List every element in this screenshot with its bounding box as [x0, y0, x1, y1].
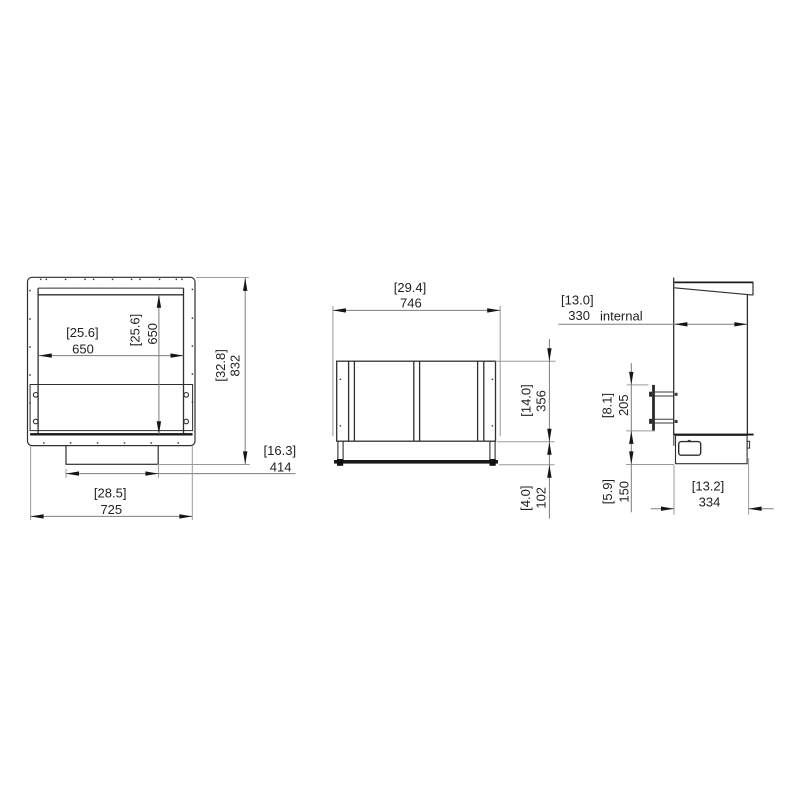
svg-text:[29.4]: [29.4]: [394, 280, 427, 295]
svg-text:[25.6]: [25.6]: [66, 325, 99, 340]
svg-text:102: 102: [534, 487, 549, 509]
svg-text:650: 650: [145, 323, 160, 345]
svg-text:[28.5]: [28.5]: [94, 485, 127, 500]
svg-text:832: 832: [227, 355, 242, 377]
svg-text:725: 725: [100, 502, 122, 517]
svg-text:[25.6]: [25.6]: [128, 314, 143, 347]
svg-text:330: 330: [568, 308, 590, 323]
svg-text:746: 746: [400, 296, 422, 311]
svg-text:[16.3]: [16.3]: [264, 443, 297, 458]
svg-text:334: 334: [699, 494, 721, 509]
svg-text:[13.0]: [13.0]: [561, 293, 594, 308]
svg-text:[13.2]: [13.2]: [692, 479, 725, 494]
svg-text:650: 650: [72, 342, 94, 357]
svg-text:[5.9]: [5.9]: [600, 479, 615, 504]
svg-text:356: 356: [534, 390, 549, 412]
svg-text:[4.0]: [4.0]: [518, 486, 533, 511]
svg-text:[14.0]: [14.0]: [518, 384, 533, 417]
svg-text:[8.1]: [8.1]: [600, 393, 615, 418]
svg-text:414: 414: [270, 459, 292, 474]
svg-text:[32.8]: [32.8]: [213, 349, 228, 382]
svg-text:150: 150: [616, 481, 631, 503]
svg-text:205: 205: [616, 394, 631, 416]
svg-text:internal: internal: [600, 308, 643, 323]
